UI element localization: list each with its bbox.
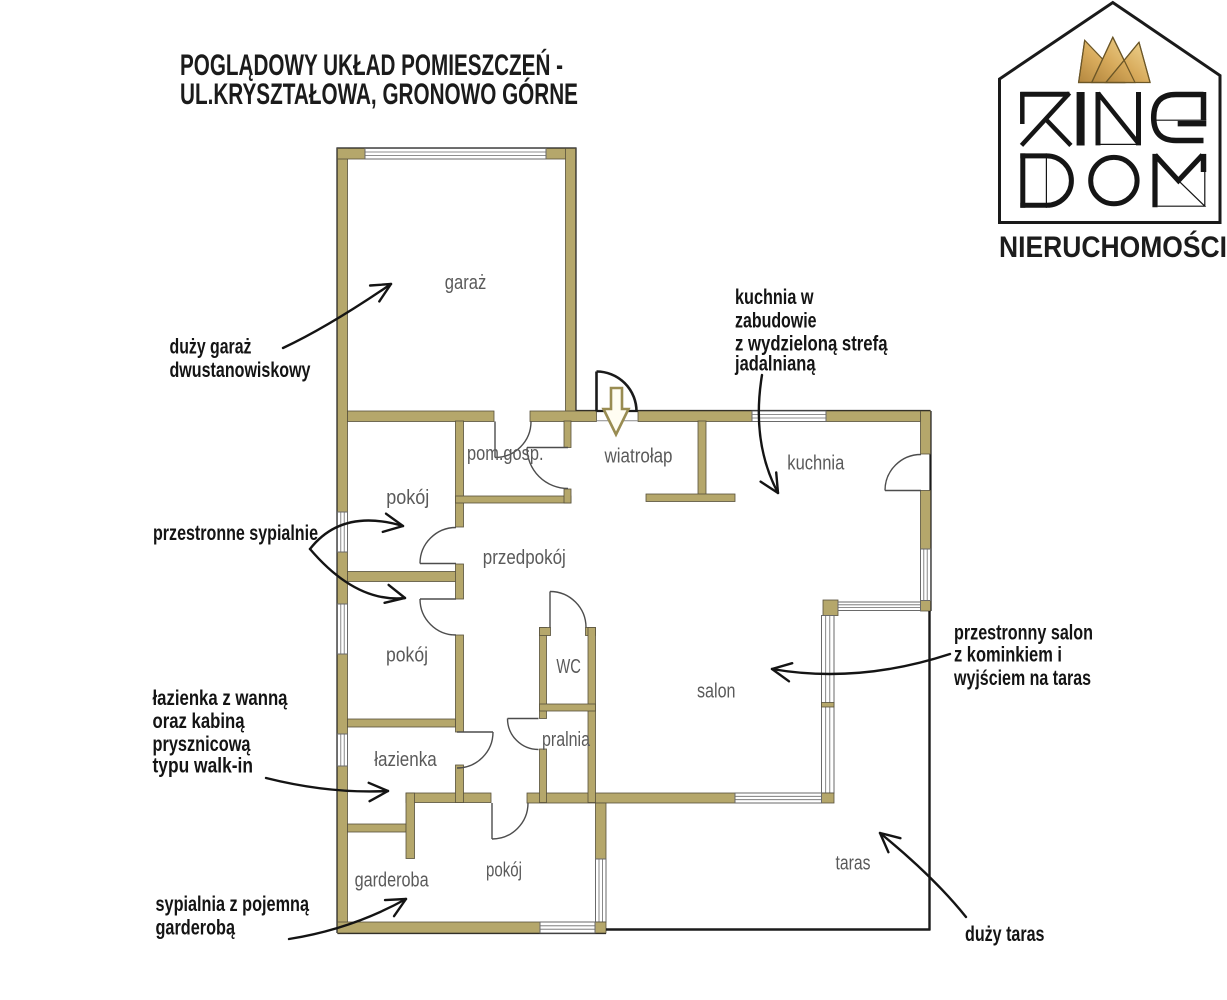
svg-text:duży garaż: duży garaż — [170, 335, 252, 359]
svg-text:garaż: garaż — [445, 272, 487, 294]
svg-text:pokój: pokój — [386, 487, 429, 509]
svg-text:WC: WC — [556, 656, 581, 678]
svg-text:NIERUCHOMOŚCI: NIERUCHOMOŚCI — [999, 230, 1227, 264]
svg-text:przestronny salon: przestronny salon — [954, 621, 1093, 645]
svg-text:salon: salon — [697, 681, 736, 703]
svg-text:duży taras: duży taras — [965, 922, 1045, 946]
svg-text:taras: taras — [836, 853, 871, 875]
svg-text:łazienka: łazienka — [374, 749, 437, 771]
svg-text:pokój: pokój — [486, 860, 522, 882]
svg-text:jadalnianą: jadalnianą — [734, 352, 816, 376]
svg-text:typu walk-in: typu walk-in — [153, 754, 254, 778]
svg-text:POGLĄDOWY UKŁAD POMIESZCZEŃ -: POGLĄDOWY UKŁAD POMIESZCZEŃ - — [180, 48, 563, 82]
svg-text:pokój: pokój — [386, 645, 428, 667]
svg-text:sypialnia z pojemną: sypialnia z pojemną — [156, 892, 310, 916]
svg-text:przedpokój: przedpokój — [483, 547, 566, 569]
svg-text:kuchnia: kuchnia — [787, 453, 845, 475]
svg-text:łazienka z wanną: łazienka z wanną — [153, 686, 289, 710]
svg-text:wyjściem na taras: wyjściem na taras — [953, 666, 1091, 690]
svg-text:prysznicową: prysznicową — [153, 732, 252, 756]
svg-text:dwustanowiskowy: dwustanowiskowy — [170, 358, 311, 382]
svg-text:zabudowie: zabudowie — [735, 309, 817, 333]
svg-text:pom.gosp.: pom.gosp. — [467, 443, 544, 465]
svg-text:wiatrołap: wiatrołap — [604, 446, 673, 468]
svg-text:z kominkiem i: z kominkiem i — [954, 643, 1062, 667]
svg-text:kuchnia w: kuchnia w — [735, 285, 814, 309]
svg-text:UL.KRYSZTAŁOWA, GRONOWO GÓRNE: UL.KRYSZTAŁOWA, GRONOWO GÓRNE — [180, 77, 578, 111]
svg-text:garderobą: garderobą — [156, 916, 236, 940]
svg-text:pralnia: pralnia — [542, 729, 591, 751]
svg-text:oraz kabiną: oraz kabiną — [153, 709, 246, 733]
svg-text:garderoba: garderoba — [355, 870, 430, 892]
svg-text:przestronne sypialnie: przestronne sypialnie — [153, 521, 318, 545]
